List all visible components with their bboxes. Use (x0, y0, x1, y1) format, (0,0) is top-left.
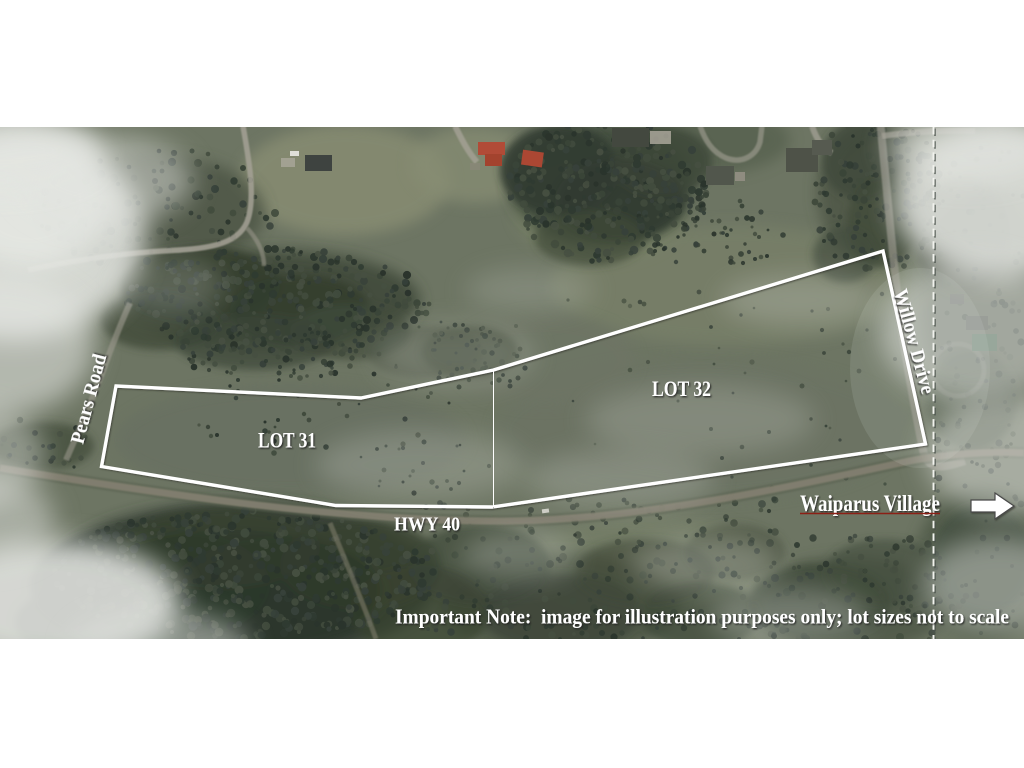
svg-text:HWY 40: HWY 40 (394, 514, 460, 536)
svg-text:LOT 31: LOT 31 (258, 428, 316, 453)
svg-text:Waiparus Village: Waiparus Village (800, 491, 940, 516)
svg-text:LOT 32: LOT 32 (652, 376, 711, 401)
svg-text:Important Note: image for ill: Important Note: image for illustration p… (395, 605, 1009, 629)
